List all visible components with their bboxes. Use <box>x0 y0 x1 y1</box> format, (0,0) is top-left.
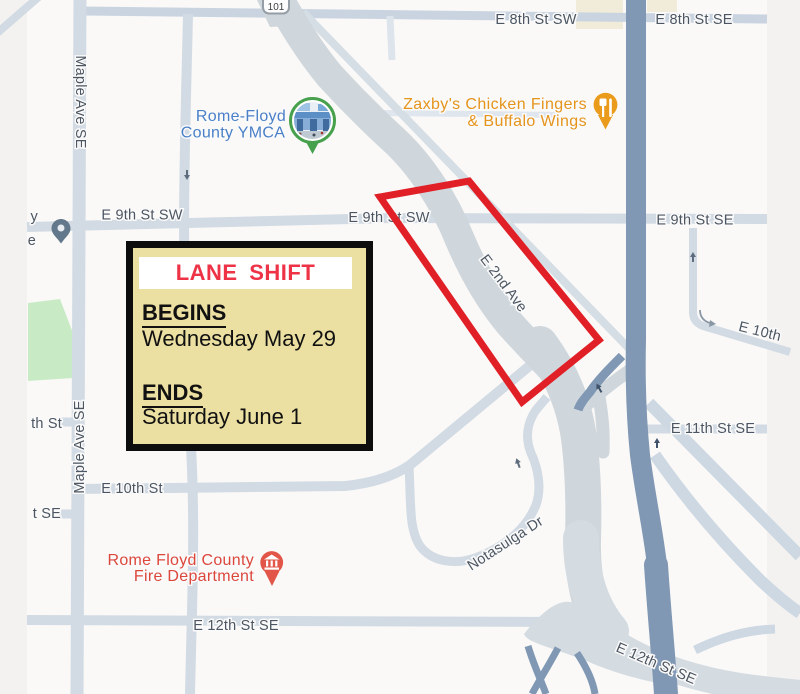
svg-text:E 9th St SE: E 9th St SE <box>656 213 733 229</box>
svg-text:E 12th St SE: E 12th St SE <box>193 618 279 634</box>
svg-text:E 8th St SW: E 8th St SW <box>495 12 576 28</box>
svg-text:Zaxby's Chicken Fingers: Zaxby's Chicken Fingers <box>403 96 587 113</box>
svg-text:E 10th St: E 10th St <box>101 481 162 497</box>
svg-text:& Buffalo Wings: & Buffalo Wings <box>467 113 587 130</box>
svg-text:e: e <box>28 233 36 249</box>
svg-text:E 11th St SE: E 11th St SE <box>671 421 755 437</box>
svg-text:Maple Ave SE: Maple Ave SE <box>72 55 88 148</box>
svg-text:th St: th St <box>31 416 62 432</box>
svg-text:t SE: t SE <box>33 506 61 522</box>
svg-text:Rome Floyd County: Rome Floyd County <box>108 552 255 569</box>
svg-text:y: y <box>31 209 39 225</box>
svg-text:101: 101 <box>268 2 285 13</box>
svg-text:County YMCA: County YMCA <box>181 125 285 142</box>
svg-text:Fire Department: Fire Department <box>134 568 254 585</box>
svg-text:E 8th St SE: E 8th St SE <box>655 12 732 28</box>
svg-text:Maple Ave SE: Maple Ave SE <box>72 400 88 493</box>
svg-text:Rome-Floyd: Rome-Floyd <box>196 108 286 125</box>
svg-text:E 9th St SW: E 9th St SW <box>101 208 182 224</box>
